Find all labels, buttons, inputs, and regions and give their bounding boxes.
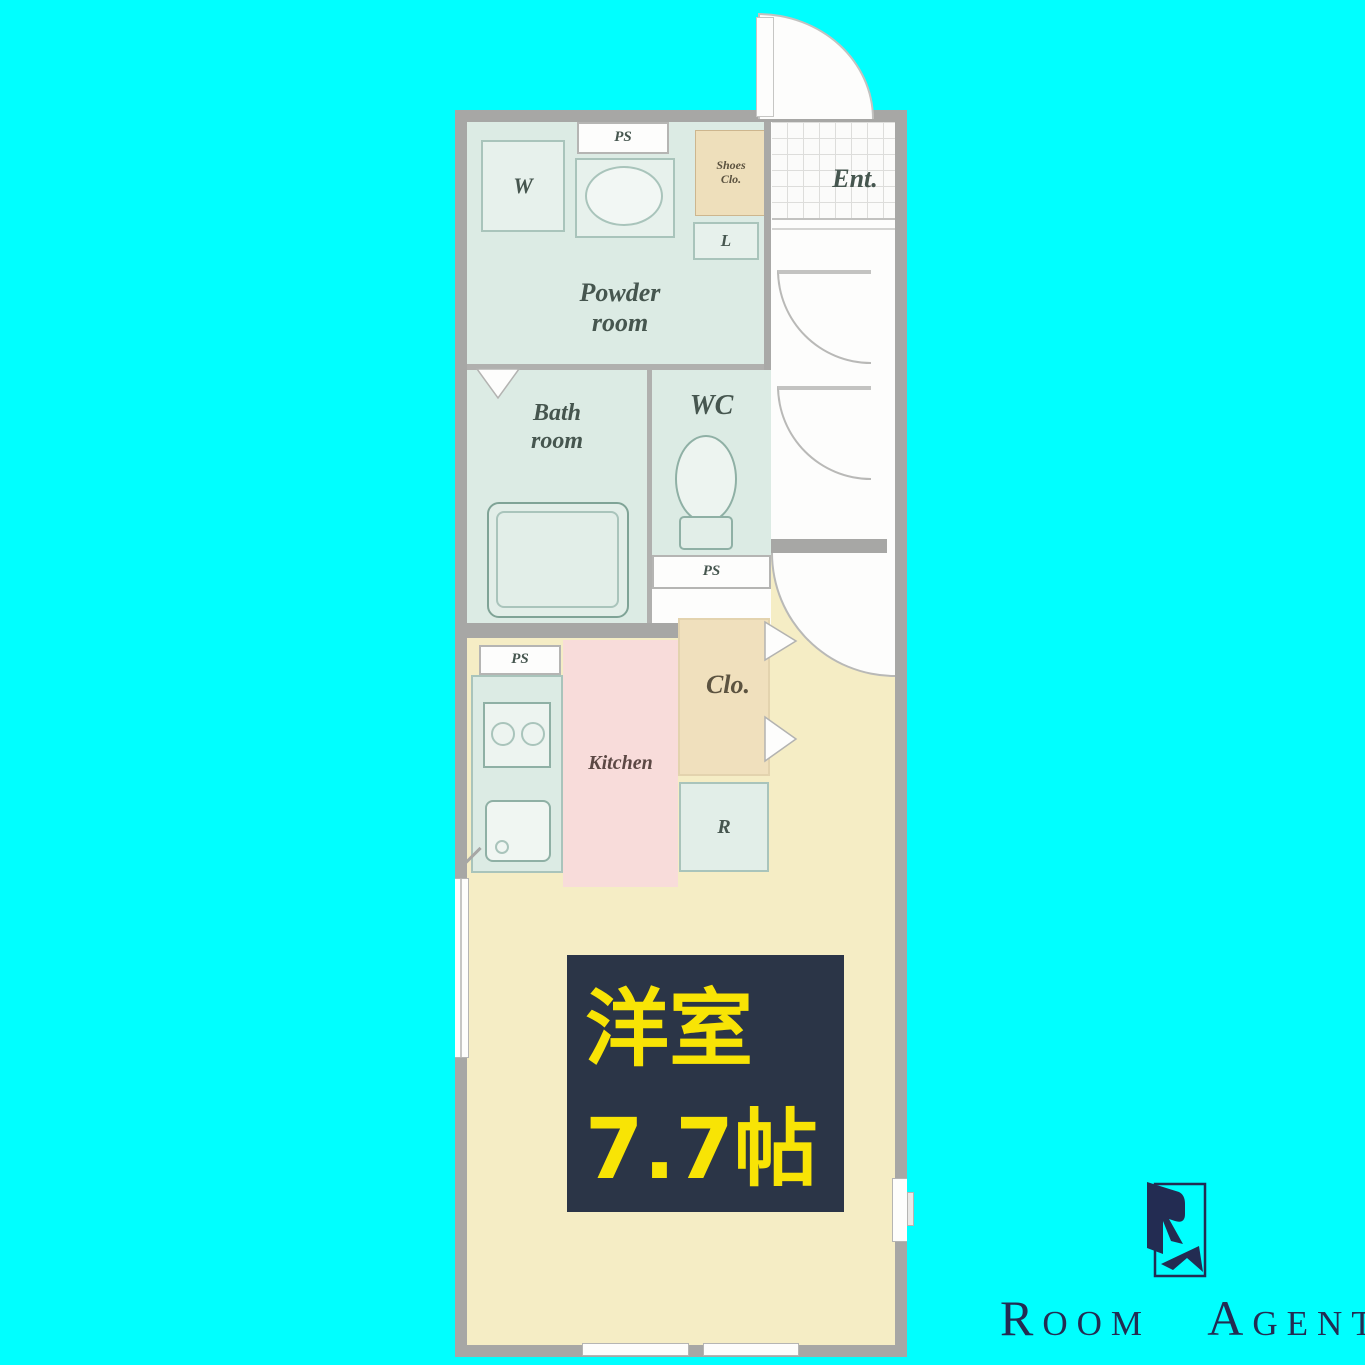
room-agent-door-icon [1133,1180,1213,1284]
shoes-closet: Shoes Clo. [695,130,767,216]
room-agent-logo: Room Agent [1000,1180,1345,1350]
linen-box: L [693,222,759,260]
room-agent-logo-text: Room Agent [1000,1289,1345,1347]
window-left [455,878,469,1058]
closet-label: Clo. [678,670,778,700]
window-right [892,1178,907,1242]
entrance-door-arc [758,13,874,119]
refrigerator-space: R [679,782,769,872]
bath-door-mark [475,368,521,400]
kitchen-sink [485,800,551,862]
refrigerator-label: R [717,816,730,839]
toilet-base [679,516,733,550]
page: { "colors": { "background": "#00ffff", "… [0,0,1365,1365]
stove-burner-right [521,722,545,746]
washer-space: W [481,140,565,232]
vanity-basin [585,166,663,226]
wc-label: WC [652,390,771,422]
entrance-label: Ent. [815,164,895,194]
stove-burner-left [491,722,515,746]
logo-word-agent: Agent [1207,1290,1365,1346]
wc-door-arc [777,386,871,480]
pipe-space-kitchen-label: PS [511,651,529,668]
pipe-space-top: PS [577,122,669,154]
bath-room-label: Bath room [477,400,637,455]
toilet-bowl [675,435,737,523]
window-left-mullion [460,879,462,1057]
window-bottom-right [703,1343,799,1356]
main-room-size: 7.7帖 [585,1089,826,1209]
floor-plan: W PS Shoes Clo. L Powder room Ent. [455,110,907,1357]
bathtub [487,502,629,618]
entrance-door-leaf [756,17,774,117]
closet-fold-mark-bottom [763,715,799,763]
stove [483,702,551,768]
powder-room-label: Powder room [495,278,745,338]
wall-hall-bottom [767,539,887,553]
linen-label: L [721,231,731,251]
kitchen-sink-drain [495,840,509,854]
shoes-closet-label-2: Clo. [721,173,741,187]
entrance-step-line2 [772,228,895,230]
pipe-space-wc-label: PS [703,563,721,580]
washer-label: W [513,173,533,198]
shoes-closet-label-1: Shoes [716,159,745,173]
wall-bath-kitchen [467,623,697,638]
main-room-label-box: 洋室 7.7帖 [567,955,844,1212]
logo-word-room: Room [1000,1290,1151,1346]
pipe-space-top-label: PS [614,129,632,146]
entrance-step-line [772,218,895,220]
closet-fold-mark-top [763,620,799,662]
floor-plan-interior: W PS Shoes Clo. L Powder room Ent. [467,122,895,1345]
window-bottom-left [582,1343,689,1356]
pipe-space-wc: PS [652,555,771,589]
kitchen-label: Kitchen [563,752,678,775]
powder-door-arc [777,270,871,364]
pipe-space-kitchen: PS [479,645,561,675]
window-right-tab [907,1192,914,1226]
vanity-sink [575,158,675,238]
main-room-name: 洋室 [585,969,826,1089]
bathtub-inner [496,511,619,608]
